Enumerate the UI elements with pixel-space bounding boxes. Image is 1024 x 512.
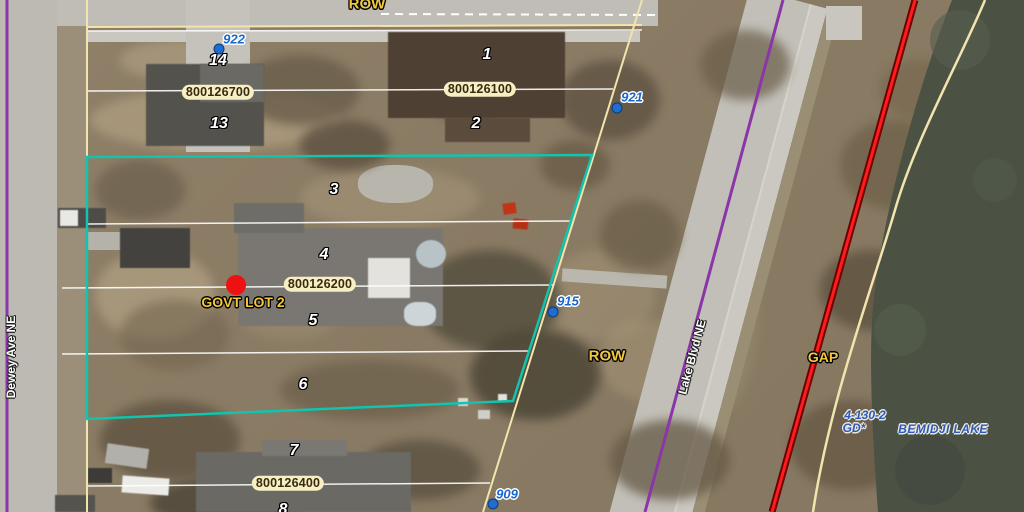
lot-line: [88, 89, 613, 91]
address-label: 909: [496, 488, 518, 501]
lot-line: [88, 30, 642, 31]
govt-lot-label: GOVT LOT 2: [201, 295, 284, 309]
lot-number-label: 14: [209, 53, 227, 69]
lot-number-label: 5: [309, 313, 318, 329]
parcel-boundary-diagonal: [483, 0, 642, 512]
map-canvas[interactable]: 800126700 800126100 800126200 800126400 …: [0, 0, 1024, 512]
lot-number-label: 1: [483, 47, 492, 63]
parcel-id-label: 800126100: [444, 82, 516, 97]
selected-point-marker: [226, 275, 246, 295]
parcel-id-label: 800126700: [182, 85, 254, 100]
lot-number-label: 6: [299, 377, 308, 393]
address-point-921: [612, 103, 622, 113]
address-point-915: [548, 307, 558, 317]
lot-number-label: 3: [330, 182, 339, 198]
row-label-top: ROW: [349, 0, 386, 12]
lake-water-shade: [930, 10, 990, 70]
address-label: 921: [621, 91, 643, 104]
street-name-dewey: Dewey Ave NE: [5, 316, 17, 398]
lot-number-label: 8: [279, 502, 288, 512]
lot-number-label: 2: [472, 116, 481, 132]
address-label: 922: [223, 33, 245, 46]
street-centerline-lake-blvd: [645, 0, 783, 512]
parcel-boundary-top: [87, 25, 642, 27]
parcel-line-overlay: [0, 0, 1024, 512]
lake-water-shade: [895, 435, 965, 505]
survey-sub-label: GD*: [843, 422, 866, 434]
lot-number-label: 13: [210, 116, 228, 132]
lake-water-shade: [874, 304, 926, 356]
lot-line: [88, 221, 571, 224]
survey-code-label: 4-130-2: [844, 409, 885, 421]
lake-water-shade: [973, 158, 1017, 202]
lot-number-label: 4: [320, 247, 329, 263]
road-edge-dash-line: [381, 14, 658, 15]
row-label-mid: ROW: [589, 349, 626, 364]
address-label: 915: [557, 295, 579, 308]
gap-label: GAP: [808, 350, 838, 364]
parcel-id-label: 800126200: [284, 277, 356, 292]
lake-name-label: BEMIDJI LAKE: [898, 423, 987, 435]
parcel-id-label: 800126400: [252, 476, 324, 491]
lot-line: [62, 351, 530, 354]
lot-number-label: 7: [290, 443, 299, 459]
